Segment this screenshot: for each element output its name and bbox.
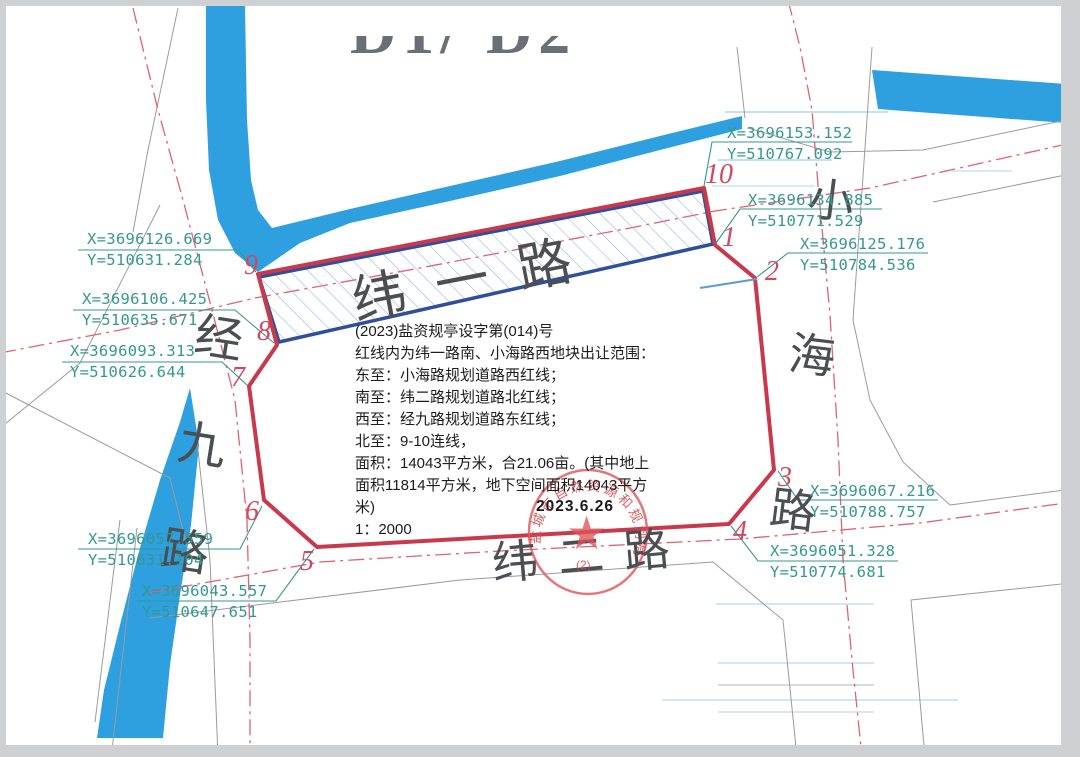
coord-x-p3: X=3696067.216: [810, 481, 935, 502]
seal-star-icon: ★: [566, 510, 607, 556]
coord-y-p2: Y=510784.536: [800, 255, 925, 276]
scan-margin-bottom: [0, 745, 1080, 757]
vertex-label-10: 10: [705, 161, 733, 189]
coord-label-p8: X=3696106.425 Y=510635.671: [82, 289, 207, 331]
coord-y-p5: Y=510647.651: [142, 602, 267, 623]
notes-line-1: (2023)盐资规亭设字第(014)号: [355, 321, 695, 343]
notes-line-8: 面积11814平方米，地下空间面积14043平方: [355, 475, 695, 497]
vertex-label-6: 6: [245, 498, 259, 526]
seal-date: 2023.6.26: [536, 498, 614, 516]
coord-x-p2: X=3696125.176: [800, 234, 925, 255]
coord-x-p10: X=3696153.152: [727, 123, 852, 144]
notes-line-6: 北至：9-10连线，: [355, 431, 695, 453]
vertex-label-5: 5: [300, 548, 314, 576]
coord-y-p4: Y=510774.681: [770, 562, 895, 583]
coord-label-p6: X=3696057.559 Y=510631.104: [88, 529, 213, 571]
scan-margin-right: [1061, 0, 1080, 757]
vertex-label-4: 4: [733, 518, 747, 546]
parcel-notes-block: (2023)盐资规亭设字第(014)号 红线内为纬一路南、小海路西地块出让范围：…: [355, 321, 695, 541]
coord-x-p4: X=3696051.328: [770, 541, 895, 562]
notes-line-2: 红线内为纬一路南、小海路西地块出让范围：: [355, 343, 695, 365]
coord-x-p7: X=3696093.313: [70, 341, 195, 362]
coord-y-p1: Y=510771.529: [748, 211, 873, 232]
vertex-label-9: 9: [244, 252, 258, 280]
notes-line-4: 南至：纬二路规划道路北红线；: [355, 387, 695, 409]
scale-label: 1：2000: [355, 519, 695, 541]
vertex-label-7: 7: [231, 364, 245, 392]
coord-x-p5: X=3696043.557: [142, 581, 267, 602]
page-title-clipped: D1/ D2: [350, 36, 630, 58]
scan-margin-top: [0, 0, 1080, 6]
coord-label-p10: X=3696153.152 Y=510767.092: [727, 123, 852, 165]
coord-label-p3: X=3696067.216 Y=510788.757: [810, 481, 935, 523]
notes-line-7: 面积：14043平方米，合21.06亩。(其中地上: [355, 453, 695, 475]
coord-x-p1: X=3696134.885: [748, 190, 873, 211]
vertex-label-1: 1: [722, 224, 736, 252]
notes-line-3: 东至：小海路规划道路西红线；: [355, 365, 695, 387]
page-title-text: D1/ D2: [350, 36, 630, 58]
coord-label-p9: X=3696126.669 Y=510631.284: [87, 229, 212, 271]
vertex-label-3: 3: [778, 464, 792, 492]
coord-label-p5: X=3696043.557 Y=510647.651: [142, 581, 267, 623]
coord-y-p7: Y=510626.644: [70, 362, 195, 383]
coord-label-p1: X=3696134.885 Y=510771.529: [748, 190, 873, 232]
notes-line-5: 西至：经九路规划道路东红线；: [355, 409, 695, 431]
coord-y-p10: Y=510767.092: [727, 144, 852, 165]
coord-y-p9: Y=510631.284: [87, 250, 212, 271]
seal-sub-text: (2): [576, 558, 591, 572]
vertex-label-8: 8: [257, 318, 271, 346]
coord-y-p6: Y=510631.104: [88, 550, 213, 571]
notes-line-9: 米): [355, 497, 695, 519]
scan-margin-left: [0, 0, 6, 757]
coord-y-p8: Y=510635.671: [82, 310, 207, 331]
vertex-label-2: 2: [765, 258, 779, 286]
coord-y-p3: Y=510788.757: [810, 502, 935, 523]
blue-segment-near-v2: [700, 279, 757, 288]
coord-label-p2: X=3696125.176 Y=510784.536: [800, 234, 925, 276]
coord-label-p4: X=3696051.328 Y=510774.681: [770, 541, 895, 583]
coord-x-p6: X=3696057.559: [88, 529, 213, 550]
river-top-right: [872, 70, 1080, 124]
coord-x-p8: X=3696106.425: [82, 289, 207, 310]
scanned-parcel-map: { "header": { "title": "D1/ D2" }, "note…: [0, 0, 1080, 757]
coord-x-p9: X=3696126.669: [87, 229, 212, 250]
coord-label-p7: X=3696093.313 Y=510626.644: [70, 341, 195, 383]
